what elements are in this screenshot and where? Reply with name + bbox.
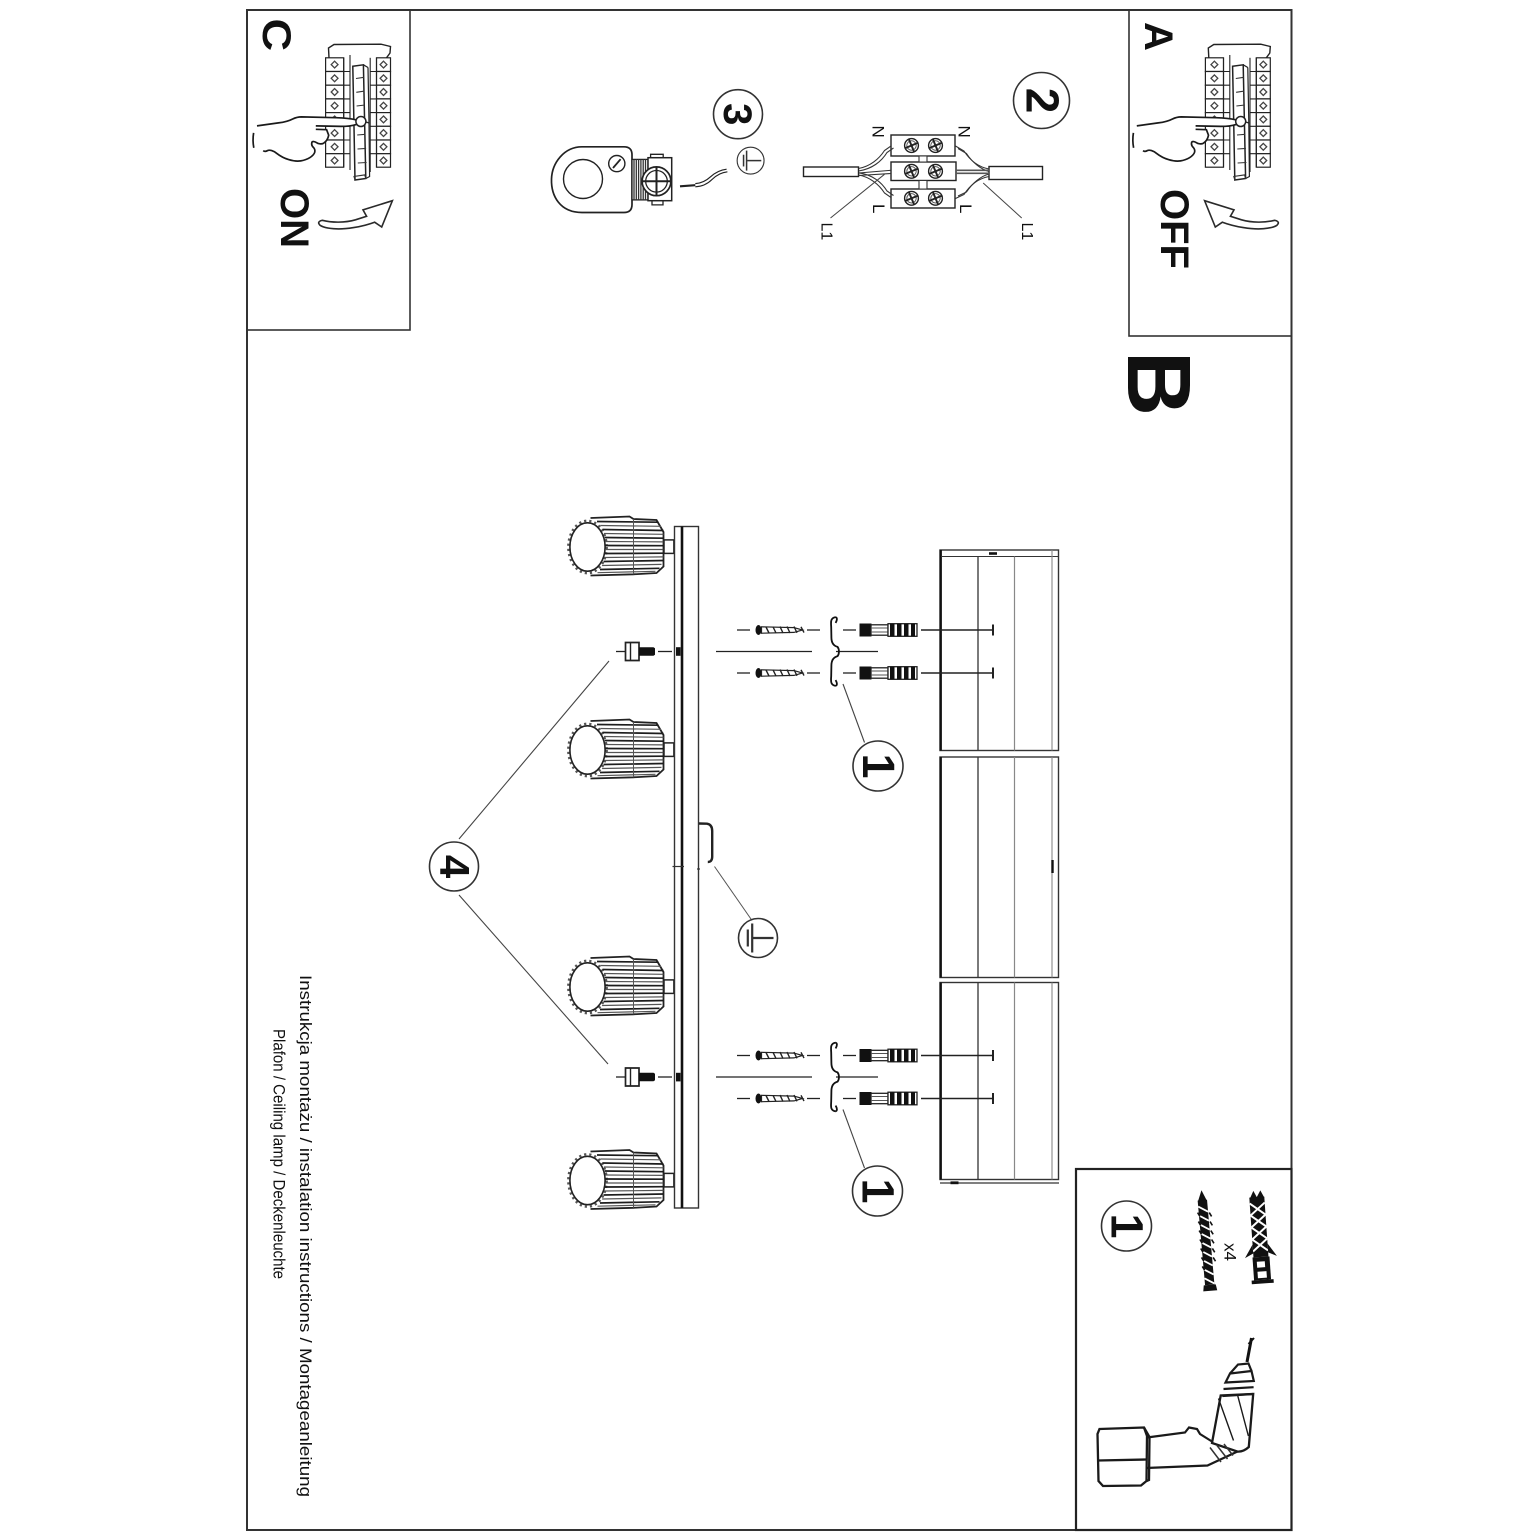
svg-text:L: L — [869, 204, 888, 213]
svg-text:N: N — [955, 126, 974, 138]
svg-text:3: 3 — [715, 103, 759, 125]
svg-text:A: A — [1136, 22, 1180, 51]
svg-text:1: 1 — [853, 753, 904, 778]
svg-text:L1: L1 — [818, 223, 835, 241]
svg-text:Plafon / Ceiling lamp / Decken: Plafon / Ceiling lamp / Deckenleuchte — [270, 1029, 288, 1279]
svg-text:L1: L1 — [1018, 223, 1035, 241]
svg-text:1: 1 — [853, 1178, 904, 1203]
svg-text:x4: x4 — [1221, 1243, 1240, 1261]
svg-text:B: B — [1108, 351, 1208, 416]
svg-text:1: 1 — [1102, 1213, 1153, 1238]
svg-text:4: 4 — [431, 855, 478, 879]
svg-text:2: 2 — [1017, 88, 1069, 114]
svg-text:L: L — [956, 204, 975, 213]
svg-text:ON: ON — [272, 188, 316, 248]
svg-text:OFF: OFF — [1152, 189, 1196, 269]
svg-text:C: C — [254, 19, 299, 52]
svg-text:Instrukcja montażu / instalati: Instrukcja montażu / instalation instruc… — [296, 975, 314, 1497]
svg-text:N: N — [869, 126, 888, 138]
